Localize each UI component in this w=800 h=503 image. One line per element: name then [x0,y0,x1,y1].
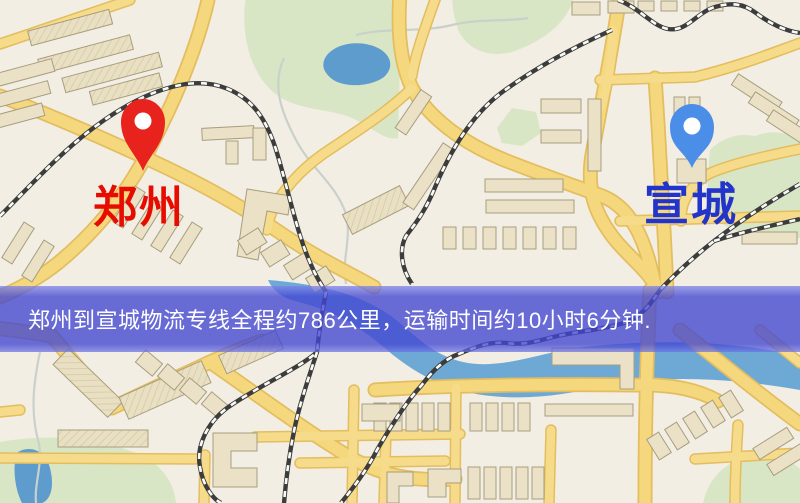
route-banner: 郑州到宣城物流专线全程约786公里，运输时间约10小时6分钟. [0,286,800,352]
destination-label: 宣城 [644,180,738,230]
map-canvas: 郑州 宣城 [0,0,800,503]
origin-label: 郑州 [93,183,185,232]
route-banner-text: 郑州到宣城物流专线全程约786公里，运输时间约10小时6分钟. [28,303,651,335]
map-image: 郑州 宣城 郑州到宣城物流专线全程约786公里，运输时间约10小时6分钟. [0,0,800,503]
destination-pin-hole [684,118,701,135]
origin-pin-hole [135,113,152,130]
